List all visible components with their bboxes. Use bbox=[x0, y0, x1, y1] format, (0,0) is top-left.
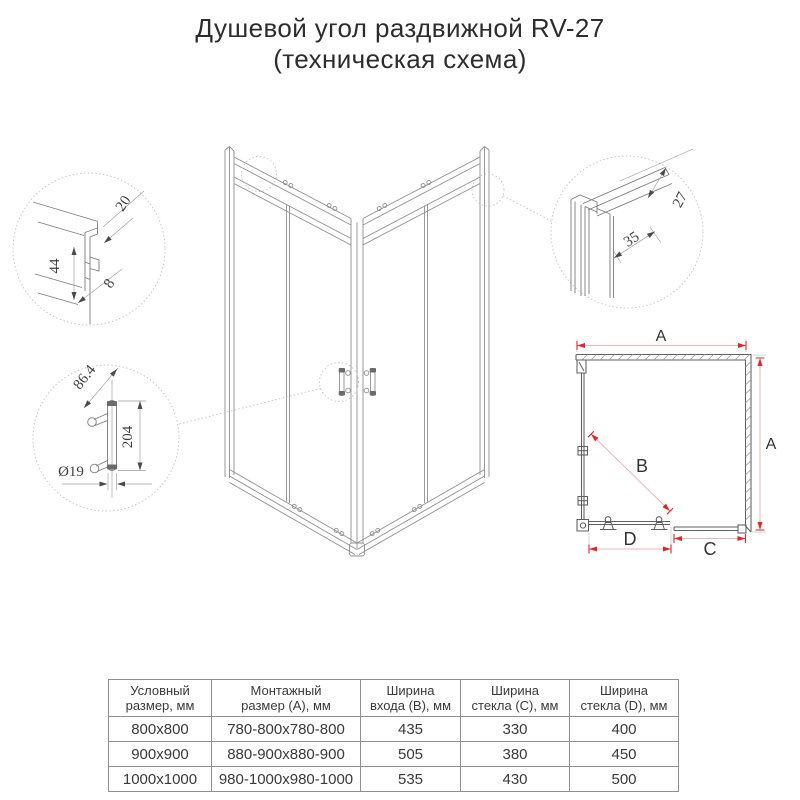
col-header-line: Ширина bbox=[572, 683, 676, 699]
detail-circle bbox=[33, 365, 179, 511]
table-cell: 980-1000x980-1000 bbox=[212, 767, 361, 792]
plan-label-b: B bbox=[636, 456, 648, 476]
plan-floor-brackets bbox=[600, 517, 668, 530]
table-row: 800x800 780-800x780-800 435 330 400 bbox=[109, 717, 679, 742]
dimension-arrow bbox=[100, 482, 108, 487]
col-header-glass-width-c: Ширина стекла (C), мм bbox=[461, 680, 570, 717]
wall-hatching-top bbox=[582, 355, 750, 361]
dim-label-204: 204 bbox=[120, 425, 136, 448]
plan-view: A A B D C bbox=[576, 328, 777, 559]
handle-pin-cap bbox=[88, 418, 97, 427]
dimension-lines-red bbox=[577, 346, 760, 550]
table-cell: 330 bbox=[461, 717, 570, 742]
handle-pin bbox=[346, 371, 351, 376]
plan-label-a-right: A bbox=[766, 436, 777, 453]
dimension-arrow bbox=[758, 522, 763, 530]
technical-drawing: 20 44 8 86.4 204 Ø19 bbox=[0, 0, 800, 665]
col-header-line: входа (B), мм bbox=[363, 698, 458, 714]
dimension-arrow bbox=[72, 247, 77, 255]
plan-corner-fitting bbox=[580, 523, 585, 528]
col-header-line: стекла (C), мм bbox=[463, 698, 567, 714]
plan-wall-profile-top bbox=[577, 360, 586, 373]
col-header-line: стекла (D), мм bbox=[572, 698, 676, 714]
table-header-row: Условный размер, мм Монтажный размер (A)… bbox=[109, 680, 679, 717]
table-cell: 505 bbox=[361, 742, 461, 767]
plan-door-edge bbox=[674, 527, 738, 531]
plan-label-c: C bbox=[704, 539, 717, 559]
col-header-line: Ширина bbox=[363, 683, 458, 699]
main-isometric-drawing bbox=[177, 147, 553, 557]
col-header-mounting-size: Монтажный размер (A), мм bbox=[212, 680, 361, 717]
col-header-line: Монтажный bbox=[214, 683, 358, 699]
detail-corner-profile: 27 35 bbox=[551, 149, 703, 308]
corner-profile-lines bbox=[571, 168, 672, 299]
table-row: 1000x1000 980-1000x980-1000 535 430 500 bbox=[109, 767, 679, 792]
col-header-glass-width-d: Ширина стекла (D), мм bbox=[570, 680, 679, 717]
plan-glass-clamps bbox=[578, 447, 588, 506]
callout-marker-rail bbox=[242, 157, 277, 192]
dim-label-27: 27 bbox=[670, 189, 691, 210]
table-cell: 450 bbox=[570, 742, 679, 767]
size-table: Условный размер, мм Монтажный размер (A)… bbox=[108, 679, 679, 792]
dimension-arrow bbox=[138, 401, 143, 409]
dim-label-20: 20 bbox=[113, 193, 135, 214]
handle-cap bbox=[107, 465, 117, 470]
plan-walls bbox=[576, 355, 751, 533]
table-cell: 435 bbox=[361, 717, 461, 742]
technical-sheet: Душевой угол раздвижной RV-27 (техническ… bbox=[0, 0, 800, 800]
handle-pin bbox=[364, 388, 369, 393]
handle-cap bbox=[107, 401, 117, 406]
handle-pin bbox=[346, 388, 351, 393]
dimension-arrow bbox=[738, 536, 746, 541]
plan-label-d: D bbox=[624, 529, 637, 549]
dimension-arrow bbox=[674, 536, 682, 541]
col-header-line: Ширина bbox=[463, 683, 567, 699]
dim-label-35: 35 bbox=[621, 229, 642, 251]
table-row: 900x900 880-900x880-900 505 380 450 bbox=[109, 742, 679, 767]
table-cell: 1000x1000 bbox=[109, 767, 212, 792]
dimension-arrow bbox=[738, 343, 746, 348]
dimension-arrow bbox=[117, 482, 125, 487]
table-cell: 880-900x880-900 bbox=[212, 742, 361, 767]
corner-post bbox=[351, 219, 363, 549]
wall-hatching-right bbox=[746, 362, 752, 521]
detail-handle: 86.4 204 Ø19 bbox=[33, 362, 179, 511]
plan-door-end-fitting bbox=[738, 525, 746, 533]
table-cell: 380 bbox=[461, 742, 570, 767]
handle-pin-cap bbox=[90, 464, 99, 473]
dimension-arrow bbox=[663, 547, 671, 552]
table-cell: 430 bbox=[461, 767, 570, 792]
dimension-arrow bbox=[758, 358, 763, 366]
bracket bbox=[600, 523, 617, 530]
col-header-line: Условный bbox=[111, 683, 209, 699]
table-cell: 535 bbox=[361, 767, 461, 792]
handle-cap bbox=[370, 391, 376, 396]
detail-top-profile: 20 44 8 bbox=[13, 173, 165, 325]
table-cell: 780-800x780-800 bbox=[212, 717, 361, 742]
callout-leader-lines bbox=[177, 196, 553, 425]
col-header-line: размер, мм bbox=[111, 698, 209, 714]
handle-cap bbox=[339, 368, 345, 373]
table-cell: 800x800 bbox=[109, 717, 212, 742]
plan-label-a-top: A bbox=[656, 328, 667, 345]
plan-corner-post bbox=[577, 520, 589, 532]
handle-pin bbox=[364, 371, 369, 376]
col-header-line: размер (A), мм bbox=[214, 698, 358, 714]
dimension-arrow bbox=[138, 463, 143, 471]
dim-label-44: 44 bbox=[47, 258, 63, 274]
dim-label-diameter-19: Ø19 bbox=[58, 464, 84, 480]
bracket bbox=[651, 523, 668, 530]
dimension-arrow bbox=[577, 343, 585, 348]
dimension-arrow bbox=[72, 292, 77, 300]
col-header-entry-width: Ширина входа (B), мм bbox=[361, 680, 461, 717]
table-cell: 500 bbox=[570, 767, 679, 792]
dimension-arrow bbox=[76, 296, 85, 305]
table-cell: 900x900 bbox=[109, 742, 212, 767]
table-cell: 400 bbox=[570, 717, 679, 742]
dim-label-86-4: 86.4 bbox=[70, 362, 99, 393]
col-header-nominal-size: Условный размер, мм bbox=[109, 680, 212, 717]
dimension-arrow bbox=[613, 252, 622, 261]
handle-cap bbox=[339, 391, 345, 396]
dimension-arrow bbox=[589, 547, 597, 552]
detail-circle bbox=[13, 173, 165, 325]
detail-circle bbox=[551, 156, 703, 308]
profile-section-lines bbox=[33, 202, 99, 324]
handle-cap bbox=[370, 368, 376, 373]
